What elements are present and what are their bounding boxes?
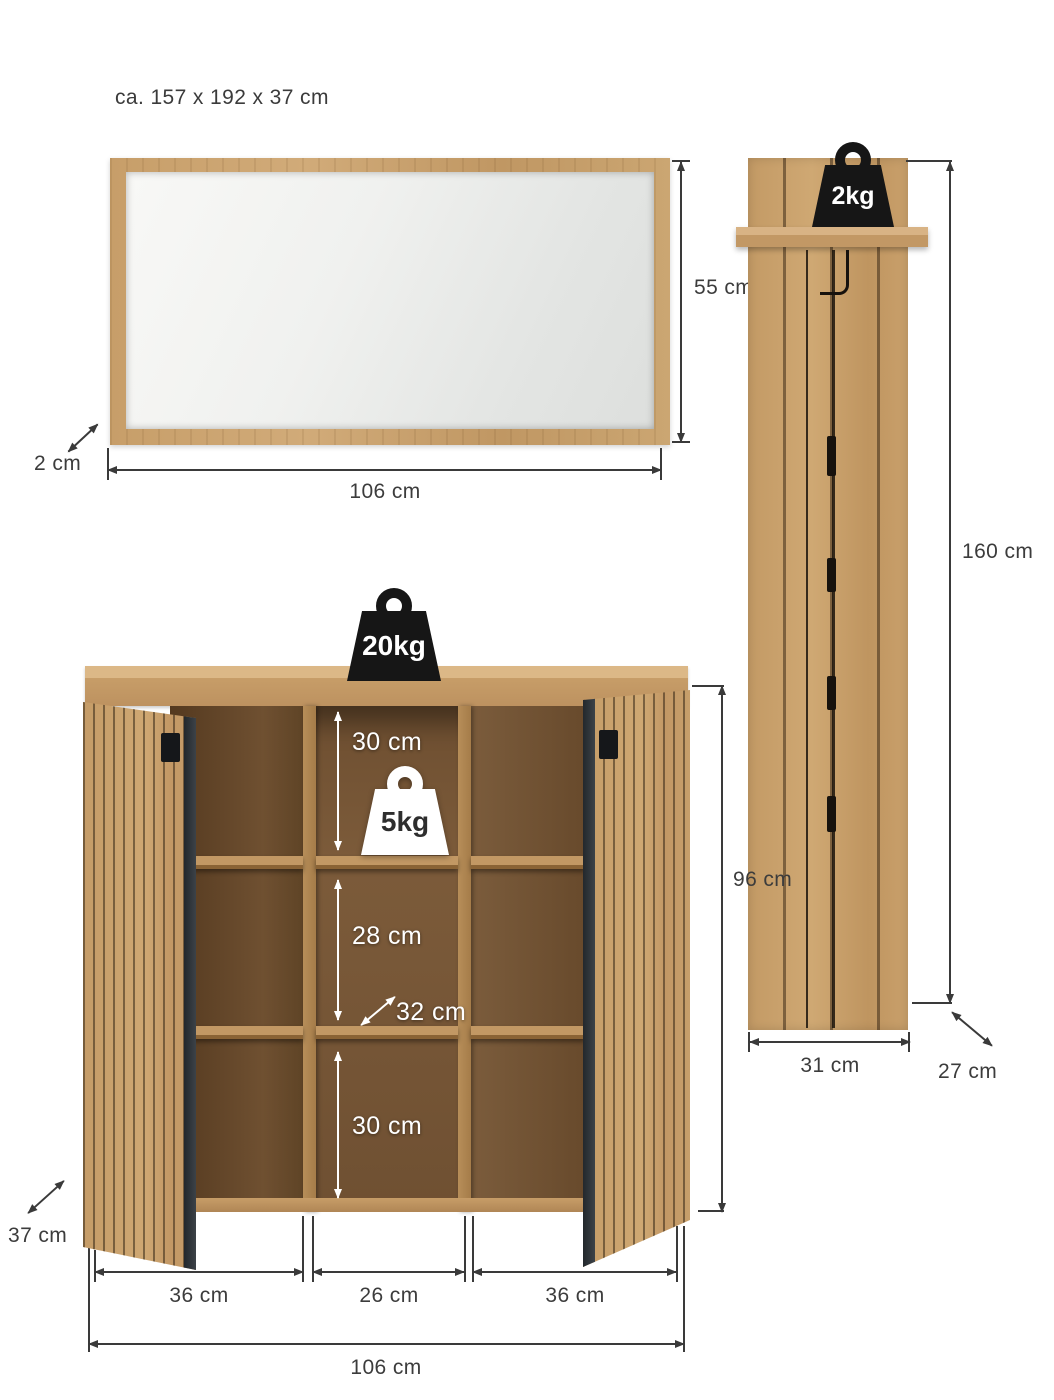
cabinet-depth-dimension-arrow [27,1180,64,1214]
max-load-20kg-icon: 20kg [347,588,441,681]
inner-middle-height-label: 28 cm [352,922,422,951]
cabinet-shelf [316,1026,458,1039]
cabinet-width-label: 106 cm [301,1356,471,1380]
panel-height-dimension-arrow [949,162,951,1003]
shelf-max-load-label: 5kg [381,806,429,838]
section-right-width-label: 36 cm [515,1284,635,1308]
section-left-width-label: 36 cm [139,1284,259,1308]
panel-width-dimension-arrow [750,1041,910,1043]
coat-hook-icon [827,796,836,832]
cabinet-height-label: 96 cm [733,868,792,892]
door-handle [599,730,618,759]
panel-groove-rod [806,250,808,1028]
cabinet-right-door [583,688,690,1270]
cabinet-divider [458,706,471,1212]
mirror-depth-dimension-arrow [68,424,99,453]
door-edge [583,688,595,1270]
inner-top-height-dimension-arrow [337,712,339,850]
mirror-frame [110,158,670,445]
inner-bottom-height-dimension-arrow [337,1052,339,1198]
mirror-surface [126,172,654,429]
coat-hook-icon [820,250,849,295]
coat-hook-icon [827,558,836,592]
cabinet-shelf [471,856,585,869]
cabinet-shelf [316,856,458,869]
section-middle-width-label: 26 cm [329,1284,449,1308]
cabinet-divider [303,706,316,1212]
cabinet-max-load-label: 20kg [362,630,426,662]
inner-top-height-label: 30 cm [352,728,422,757]
section-extension [94,1250,96,1282]
inner-depth-label: 32 cm [396,998,466,1027]
cabinet-width-extension-left [88,1230,90,1352]
section-right-dimension-arrow [473,1271,676,1273]
cabinet-bottom-panel [170,1198,585,1212]
furniture-dimension-diagram: ca. 157 x 192 x 37 cm 55 cm 106 cm 2 cm … [0,0,1054,1400]
panel-width-label: 31 cm [770,1054,890,1078]
panel-depth-label: 27 cm [938,1060,997,1084]
inner-bottom-height-label: 30 cm [352,1112,422,1141]
section-left-dimension-arrow [95,1271,303,1273]
panel-height-label: 160 cm [962,540,1033,564]
cabinet-height-dimension-arrow [721,686,723,1212]
cabinet-column-right [471,706,585,1212]
panel-max-load-label: 2kg [831,182,874,211]
door-handle [161,733,180,762]
max-load-2kg-icon: 2kg [812,142,894,227]
max-load-5kg-icon: 5kg [361,766,449,855]
cabinet-width-extension-right [683,1226,685,1352]
mirror-width-extension-left [107,448,109,480]
door-edge [184,700,196,1270]
coat-hook-icon [827,436,836,476]
cabinet-left-door [83,700,196,1270]
mirror-depth-label: 2 cm [34,452,81,476]
panel-groove-rod [832,250,835,1028]
cabinet-width-dimension-arrow [89,1343,684,1345]
cabinet-shelf [471,1026,585,1039]
mirror-height-label: 55 cm [694,276,753,300]
overall-dimensions-title: ca. 157 x 192 x 37 cm [115,86,329,110]
inner-middle-height-dimension-arrow [337,880,339,1020]
mirror-width-dimension-arrow [108,469,661,471]
coat-hook-icon [827,676,836,710]
mirror-height-dimension-arrow [680,162,682,442]
section-middle-dimension-arrow [313,1271,464,1273]
mirror-width-label: 106 cm [300,480,470,504]
panel-shelf [736,227,928,247]
mirror-width-extension-right [660,448,662,480]
cabinet-depth-label: 37 cm [8,1224,67,1248]
panel-depth-dimension-arrow [951,1012,992,1047]
